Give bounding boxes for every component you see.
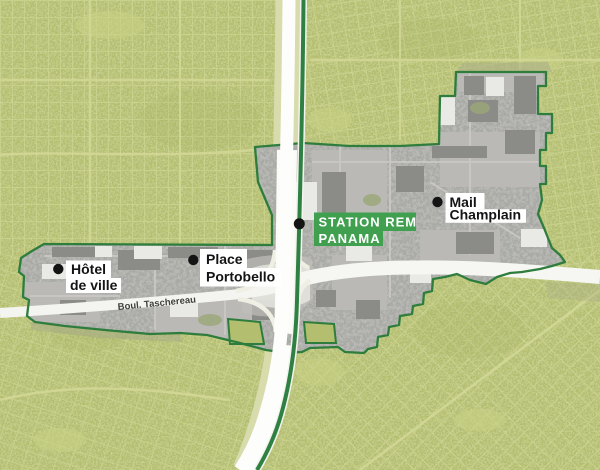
svg-text:Place: Place — [206, 251, 243, 267]
svg-text:Portobello: Portobello — [206, 269, 275, 285]
svg-text:Hôtel: Hôtel — [71, 261, 106, 277]
svg-text:STATION REM: STATION REM — [319, 214, 418, 229]
svg-text:de ville: de ville — [70, 277, 118, 293]
svg-text:PANAMA: PANAMA — [319, 231, 381, 246]
svg-text:Champlain: Champlain — [450, 207, 522, 223]
